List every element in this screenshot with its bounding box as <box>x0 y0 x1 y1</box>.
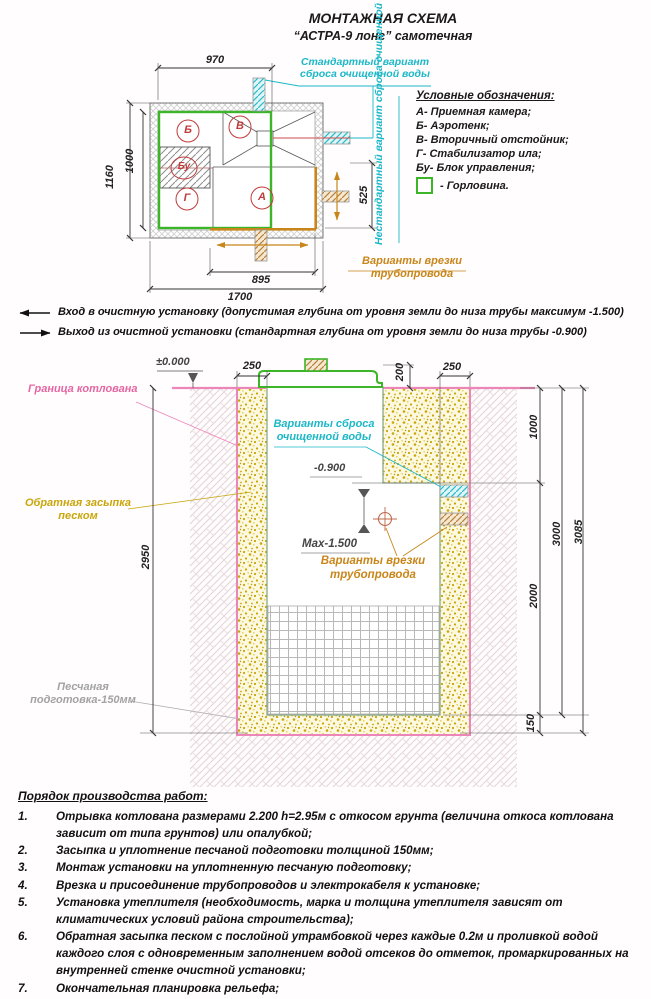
compartment-b: Б <box>175 124 201 136</box>
section-dim-200: 200 <box>394 357 406 387</box>
inlet-pipe-section <box>440 513 468 525</box>
sand-prep-layer <box>238 715 469 734</box>
item-text: Отрывка котлована размерами 2.200 h=2.95… <box>56 808 636 842</box>
zero-level-mark-icon <box>188 373 198 383</box>
level-zero-label: ±0.000 <box>156 356 190 368</box>
compartment-v: В <box>227 120 253 132</box>
pit-boundary-label: Граница котлована <box>28 383 168 396</box>
level-max-label: Max-1.500 <box>302 538 357 550</box>
sand-backfill-left <box>238 389 267 715</box>
outlet-pipe-section <box>440 485 468 497</box>
compartment-a: А <box>249 191 275 203</box>
compartment-g: Г <box>174 192 200 204</box>
section-discharge-label: Варианты сброса очищенной воды <box>268 418 380 444</box>
tank-lid <box>259 371 382 387</box>
neck-square-icon <box>416 177 433 194</box>
item-text: Засыпка и уплотнение песчаной подготовки… <box>56 842 434 859</box>
legend-item-neck: - Горловина. <box>416 177 601 194</box>
plan-dim-525: 525 <box>358 175 370 215</box>
nonstandard-discharge-label: Нестандартный вариант сброса очищенной в… <box>373 95 401 245</box>
tank-bottom-grid <box>268 606 439 714</box>
plan-dim-895: 895 <box>241 274 281 286</box>
item-number: 1. <box>18 808 56 842</box>
legend: Условные обозначения: А- Приемная камера… <box>416 90 601 194</box>
procedure-item-2: 2.Засыпка и уплотнение песчаной подготов… <box>18 842 636 859</box>
plan-dim-1160: 1160 <box>104 157 116 197</box>
plan-dim-970: 970 <box>195 54 235 66</box>
side-inlet-pipe <box>322 191 349 202</box>
sand-backfill-topright <box>383 389 469 483</box>
level-900-label: -0.900 <box>314 462 345 474</box>
procedure-title: Порядок производства работ: <box>18 789 636 803</box>
legend-item-v: В- Вторичный отстойник; <box>416 134 601 146</box>
procedure-item-3: 3.Монтаж установки на уплотненную песчан… <box>18 859 636 876</box>
backfill-label: Обратная засыпка песком <box>22 497 134 523</box>
section-dim-left-250: 250 <box>232 360 272 372</box>
compartment-bu: Бу <box>171 161 197 172</box>
section-dim-2950: 2950 <box>140 537 152 577</box>
plan-dim-1700: 1700 <box>220 291 260 303</box>
lid-vent <box>305 359 327 371</box>
procedure-list: Порядок производства работ: 1.Отрывка ко… <box>18 789 636 999</box>
plan-dim-1000: 1000 <box>124 141 136 181</box>
item-number: 2. <box>18 842 56 859</box>
legend-item-b: Б- Аэротенк; <box>416 120 601 132</box>
item-text: Обратная засыпка песком с послойной утра… <box>56 928 636 979</box>
outlet-note: Выход из очистной установки (стандартная… <box>58 326 587 338</box>
legend-item-g: Г- Стабилизатор ила; <box>416 148 601 160</box>
section-dim-right-250: 250 <box>432 361 472 373</box>
item-text: Окончательная планировка рельефа; <box>56 980 279 997</box>
procedure-item-5: 5.Установка утеплителя (необходимость, м… <box>18 894 636 928</box>
montage-scheme-page: МОНТАЖНАЯ СХЕМА “АСТРА-9 лонг” самотечна… <box>0 0 651 999</box>
item-text: Монтаж установки на уплотненную песчаную… <box>56 859 411 876</box>
legend-neck-text: - Горловина. <box>440 180 509 192</box>
procedure-item-7: 7.Окончательная планировка рельефа; <box>18 980 636 997</box>
section-dim-1000: 1000 <box>528 407 540 447</box>
item-number: 7. <box>18 980 56 997</box>
item-number: 3. <box>18 859 56 876</box>
procedure-item-1: 1.Отрывка котлована размерами 2.200 h=2.… <box>18 808 636 842</box>
item-number: 6. <box>18 928 56 979</box>
legend-title: Условные обозначения: <box>416 90 601 102</box>
procedure-item-6: 6.Обратная засыпка песком с послойной ут… <box>18 928 636 979</box>
sand-prep-label: Песчаная подготовка-150мм <box>20 681 146 707</box>
section-dim-3000: 3000 <box>551 514 563 554</box>
section-pipe-insertion-label: Варианты врезки трубопровода <box>303 555 443 582</box>
item-text: Врезка и присоединение трубопроводов и э… <box>56 877 480 894</box>
standard-outlet-pipe <box>253 78 265 111</box>
section-dim-2000: 2000 <box>528 576 540 616</box>
plan-pipe-insertion-label: Варианты врезки трубопровода <box>352 255 472 281</box>
section-dim-3085: 3085 <box>573 512 585 552</box>
legend-item-a: А- Приемная камера; <box>416 106 601 118</box>
section-dim-150: 150 <box>525 708 537 738</box>
procedure-item-4: 4.Врезка и присоединение трубопроводов и… <box>18 877 636 894</box>
standard-discharge-label: Стандартный вариант сброса очищенной вод… <box>297 56 433 81</box>
item-text: Установка утеплителя (необходимость, мар… <box>56 894 636 928</box>
item-number: 4. <box>18 877 56 894</box>
item-number: 5. <box>18 894 56 928</box>
inlet-note: Вход в очистную установку (допустимая гл… <box>58 306 624 318</box>
legend-item-bu: Бу- Блок управления; <box>416 162 601 174</box>
